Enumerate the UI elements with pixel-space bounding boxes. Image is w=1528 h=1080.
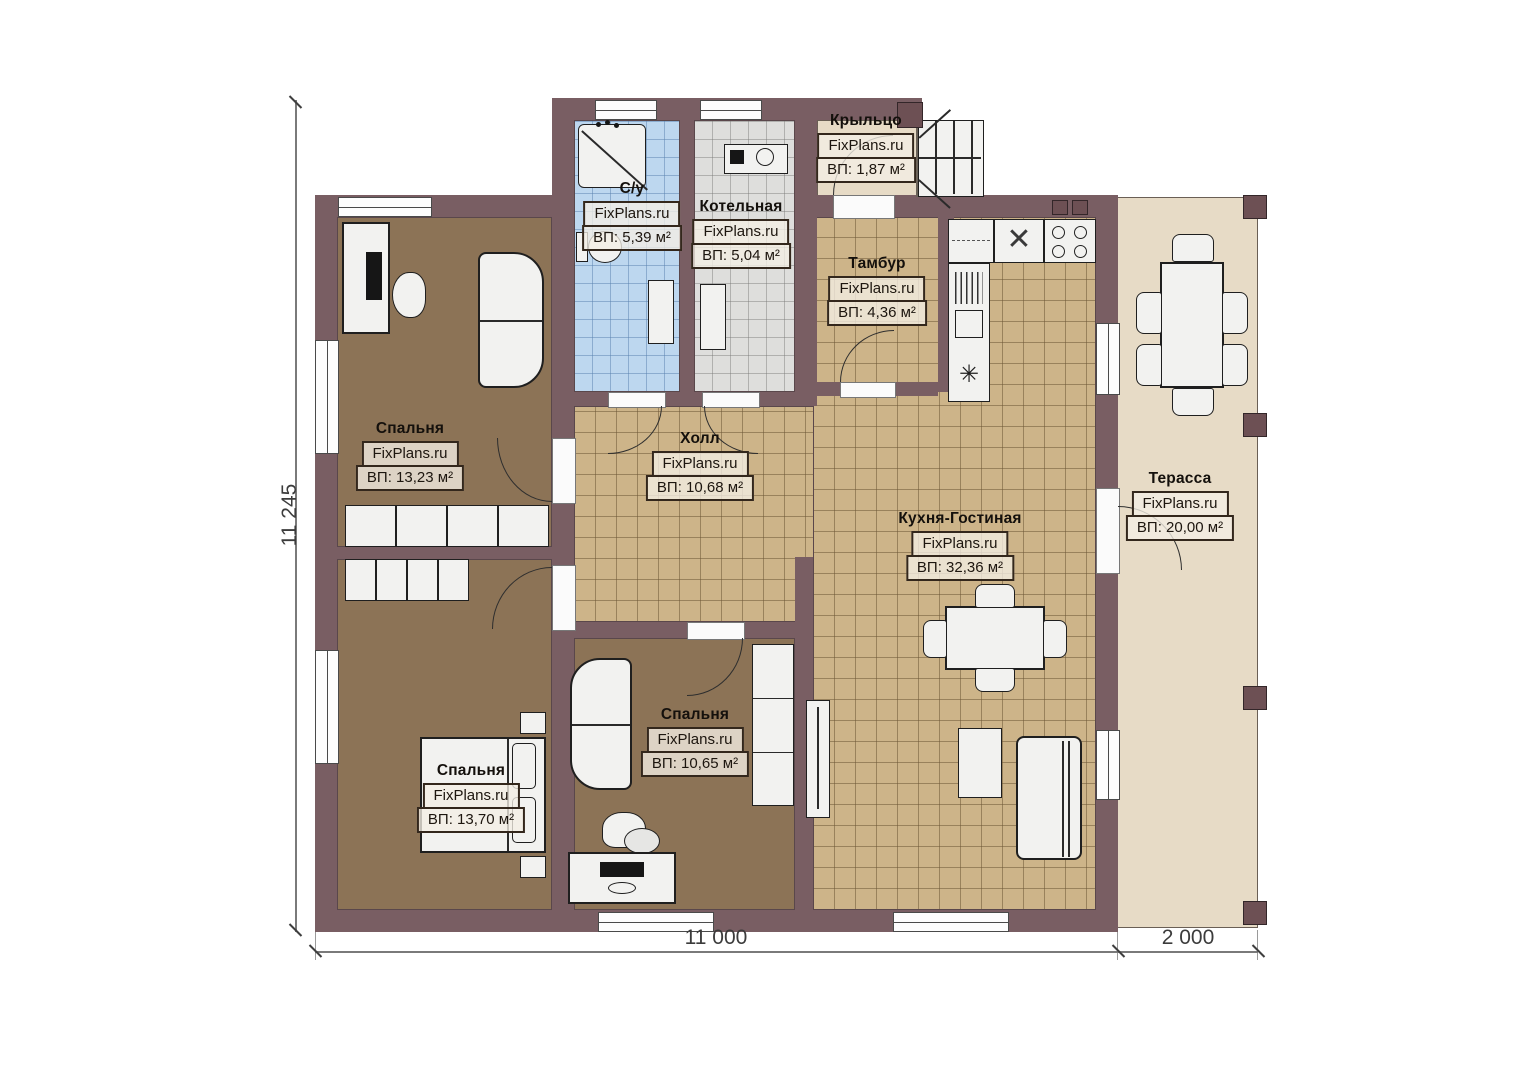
wardrobe	[752, 644, 794, 806]
mouse-icon	[608, 882, 636, 894]
room-name: Кухня-Гостиная	[898, 510, 1021, 528]
vent-grill-icon	[955, 272, 983, 304]
bedroom-1-top-window	[338, 197, 432, 217]
room-name: Крыльцо	[830, 112, 902, 130]
wall-bedroom-3-top	[574, 622, 795, 638]
entrance-door-opening	[833, 195, 895, 219]
wardrobe-cell	[345, 559, 376, 601]
sofa	[478, 252, 544, 388]
terrace-door-opening	[1096, 488, 1120, 574]
bottom-terrace-dimension-label: 2 000	[1108, 926, 1268, 950]
wall-bedrooms-main	[552, 217, 574, 910]
sofa-seam	[480, 320, 542, 322]
stove	[1044, 219, 1096, 263]
room-name: Холл	[680, 430, 720, 448]
watermark-box: FixPlans.ru	[422, 783, 519, 809]
boiler-symbol-icon: ✳	[949, 363, 989, 387]
chair	[1043, 620, 1067, 658]
kitchen-tall-unit: ✳	[948, 263, 990, 402]
room-label-kitchen-living: Кухня-Гостиная FixPlans.ru ВП: 32,36 м²	[898, 510, 1021, 581]
terrace-table	[1160, 262, 1224, 388]
room-label-bathroom: С/у FixPlans.ru ВП: 5,39 м²	[582, 180, 682, 251]
room-name: Тамбур	[848, 255, 905, 273]
shower-tray	[578, 124, 646, 188]
wall-left	[315, 195, 337, 932]
chair	[975, 584, 1015, 608]
kitchen-casework: ✕	[994, 219, 1044, 263]
room-label-terrace: Терасса FixPlans.ru ВП: 20,00 м²	[1126, 470, 1234, 541]
wall-bathroom-bottom	[552, 392, 817, 406]
bedroom-1-door-opening	[552, 438, 576, 504]
room-name: Спальня	[437, 762, 505, 780]
room-name: Котельная	[700, 198, 783, 216]
kitchen-bottom-window	[893, 912, 1009, 932]
area-box: ВП: 32,36 м²	[906, 555, 1014, 581]
room-label-bedroom-3: Спальня FixPlans.ru ВП: 10,65 м²	[641, 706, 749, 777]
chair	[1172, 388, 1214, 416]
kitchen-right-window-2	[1096, 730, 1120, 800]
plant-pot	[624, 828, 660, 854]
chair	[975, 668, 1015, 692]
room-name: С/у	[620, 180, 645, 198]
watermark-box: FixPlans.ru	[692, 219, 789, 245]
porch-stairs	[918, 120, 984, 197]
shower-head-icon	[596, 122, 601, 127]
vestibule-door-opening	[840, 382, 896, 398]
room-name: Спальня	[376, 420, 444, 438]
wardrobe-cell	[498, 505, 549, 547]
monitor-icon	[600, 862, 644, 877]
vent-duct	[1052, 200, 1068, 215]
fridge-dash	[952, 240, 990, 241]
bedroom-2-left-window	[315, 650, 339, 764]
coffee-table	[958, 728, 1002, 798]
bedroom-2-door-opening	[552, 565, 576, 631]
boiler-sink	[756, 148, 774, 166]
room-name: Терасса	[1149, 470, 1212, 488]
watermark-box: FixPlans.ru	[1131, 491, 1228, 517]
area-box: ВП: 4,36 м²	[827, 300, 927, 326]
area-box: ВП: 13,70 м²	[417, 807, 525, 833]
sofa-back-line	[1062, 741, 1064, 857]
watermark-box: FixPlans.ru	[361, 441, 458, 467]
room-label-vestibule: Тамбур FixPlans.ru ВП: 4,36 м²	[827, 255, 927, 326]
wardrobe-cell	[396, 505, 447, 547]
wardrobe-cell	[376, 559, 407, 601]
area-box: ВП: 10,68 м²	[646, 475, 754, 501]
area-box: ВП: 5,04 м²	[691, 243, 791, 269]
dining-table	[945, 606, 1045, 670]
shower-head-icon	[614, 123, 619, 128]
area-box: ВП: 5,39 м²	[582, 225, 682, 251]
office-chair	[392, 272, 426, 318]
chair	[1222, 292, 1248, 334]
sofa	[570, 658, 632, 790]
stair-mid-line	[919, 157, 981, 159]
chair	[1172, 234, 1214, 262]
wardrobe-divider	[753, 698, 793, 699]
monitor-icon	[366, 252, 382, 300]
wardrobe-cell	[407, 559, 438, 601]
chair	[1136, 292, 1162, 334]
sofa-seam	[572, 724, 630, 726]
room-label-boiler-room: Котельная FixPlans.ru ВП: 5,04 м²	[691, 198, 791, 269]
extension-line	[315, 932, 316, 960]
boiler-window	[700, 100, 762, 120]
sofa-back-line	[1068, 741, 1070, 857]
room-label-hall: Холл FixPlans.ru ВП: 10,68 м²	[646, 430, 754, 501]
watermark-box: FixPlans.ru	[817, 133, 914, 159]
chair	[1136, 344, 1162, 386]
room-label-bedroom-1: Спальня FixPlans.ru ВП: 13,23 м²	[356, 420, 464, 491]
desk	[568, 852, 676, 904]
chair	[1222, 344, 1248, 386]
left-dimension-label: 11 245	[278, 455, 302, 575]
shower-head-icon	[605, 120, 610, 125]
room-name: Спальня	[661, 706, 729, 724]
watermark-box: FixPlans.ru	[651, 451, 748, 477]
nightstand	[520, 856, 546, 878]
area-box: ВП: 1,87 м²	[816, 157, 916, 183]
tv-unit	[806, 700, 830, 818]
terrace-column	[1243, 413, 1267, 437]
bathroom-door-leaf	[648, 280, 674, 344]
burner-icon	[1074, 226, 1087, 239]
tv-line	[817, 707, 819, 809]
wardrobe-cell	[345, 505, 396, 547]
watermark-box: FixPlans.ru	[646, 727, 743, 753]
wall-bedroom1-bedroom2	[337, 547, 552, 559]
wardrobe-cell	[438, 559, 469, 601]
burner-icon	[1074, 245, 1087, 258]
terrace-column	[1243, 686, 1267, 710]
burner-icon	[1052, 226, 1065, 239]
room-label-bedroom-2: Спальня FixPlans.ru ВП: 13,70 м²	[417, 762, 525, 833]
watermark-box: FixPlans.ru	[828, 276, 925, 302]
sofa	[1016, 736, 1082, 860]
area-box: ВП: 10,65 м²	[641, 751, 749, 777]
room-label-porch: Крыльцо FixPlans.ru ВП: 1,87 м²	[816, 112, 916, 183]
wardrobe-divider	[753, 752, 793, 753]
oven	[955, 310, 983, 338]
wardrobe-cell	[447, 505, 498, 547]
desk	[342, 222, 390, 334]
vent-duct	[1072, 200, 1088, 215]
nightstand	[520, 712, 546, 734]
area-box: ВП: 20,00 м²	[1126, 515, 1234, 541]
floor-plan-canvas: ✕ ✳ С/у FixPlans.ru ВП: 5,39 м²	[0, 0, 1528, 1080]
bottom-main-dimension-label: 11 000	[616, 926, 816, 950]
terrace-column	[1243, 195, 1267, 219]
kitchen-right-window-1	[1096, 323, 1120, 395]
boiler-door-leaf	[700, 284, 726, 350]
casework-x-icon: ✕	[995, 225, 1043, 255]
wall-boiler-right	[795, 120, 817, 392]
burner-icon	[1052, 245, 1065, 258]
area-box: ВП: 13,23 м²	[356, 465, 464, 491]
bedroom-1-left-window	[315, 340, 339, 454]
watermark-box: FixPlans.ru	[911, 531, 1008, 557]
chair	[923, 620, 947, 658]
terrace-column	[1243, 901, 1267, 925]
bathroom-window	[595, 100, 657, 120]
fridge	[948, 219, 994, 263]
boiler-unit-icon	[730, 150, 744, 164]
watermark-box: FixPlans.ru	[583, 201, 680, 227]
